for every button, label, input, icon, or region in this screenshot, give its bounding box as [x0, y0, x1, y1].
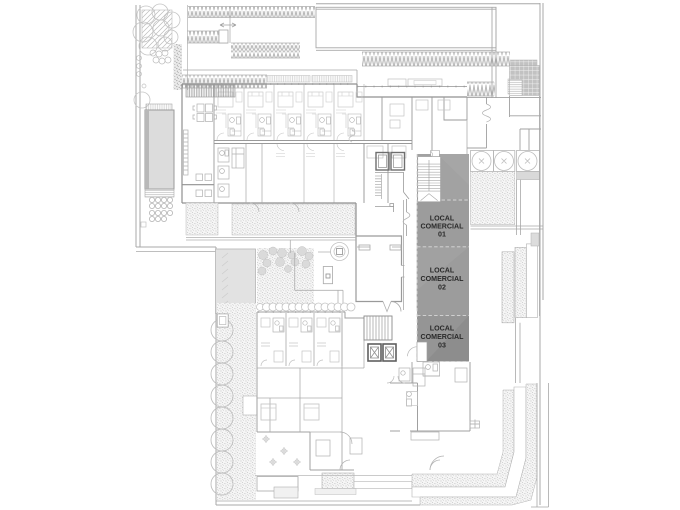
svg-text:COMERCIAL: COMERCIAL: [421, 333, 465, 341]
svg-text:LOCAL: LOCAL: [430, 215, 455, 223]
svg-text:COMERCIAL: COMERCIAL: [421, 275, 465, 283]
svg-text:02: 02: [438, 283, 446, 291]
svg-text:COMERCIAL: COMERCIAL: [421, 223, 465, 231]
svg-text:LOCAL: LOCAL: [430, 324, 455, 332]
svg-text:01: 01: [438, 231, 446, 239]
svg-text:LOCAL: LOCAL: [430, 267, 455, 275]
svg-text:03: 03: [438, 341, 446, 349]
